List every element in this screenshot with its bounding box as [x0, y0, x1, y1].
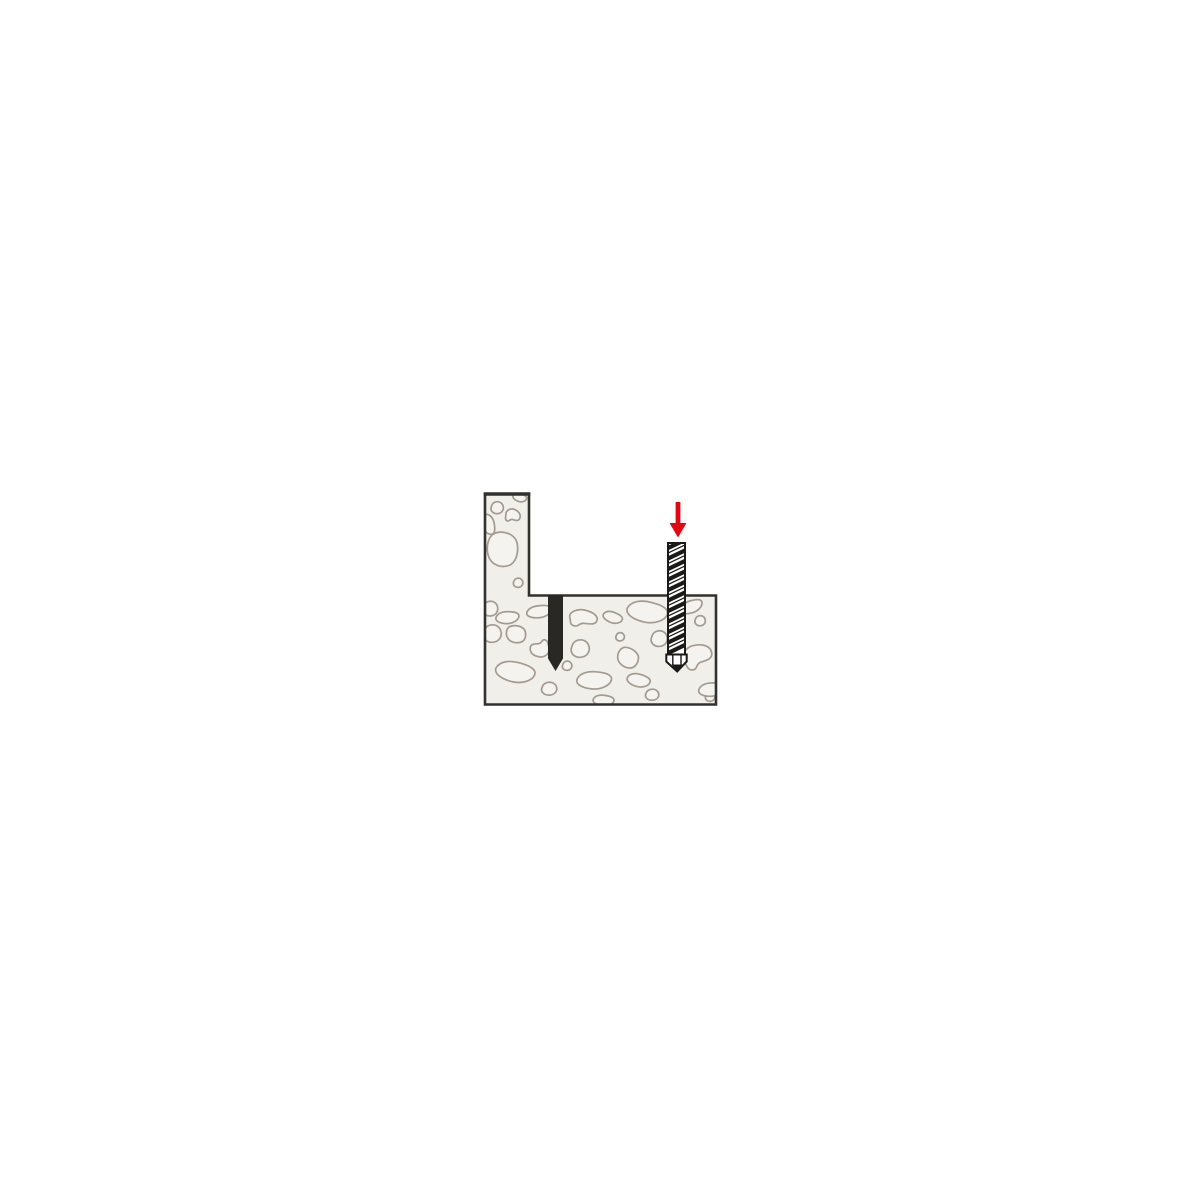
aggregate-stone — [571, 640, 589, 657]
aggregate-stone — [562, 661, 572, 670]
concrete-block — [479, 492, 725, 706]
diagram-canvas — [0, 0, 1200, 1200]
drill-bit — [666, 539, 687, 672]
aggregate-stone — [651, 631, 667, 647]
aggregate-stone — [513, 578, 523, 587]
down-arrow-head — [670, 523, 687, 538]
aggregate-stone — [645, 689, 658, 700]
aggregate-stone — [695, 616, 705, 626]
aggregate-stone — [506, 625, 527, 644]
aggregate-stone — [491, 502, 503, 514]
installation-diagram — [0, 0, 1200, 1200]
aggregate-stone — [616, 633, 625, 641]
drilled-hole — [548, 595, 563, 672]
down-arrow-icon — [670, 502, 687, 538]
aggregate-stone — [542, 682, 557, 695]
down-arrow-shaft — [676, 502, 681, 525]
